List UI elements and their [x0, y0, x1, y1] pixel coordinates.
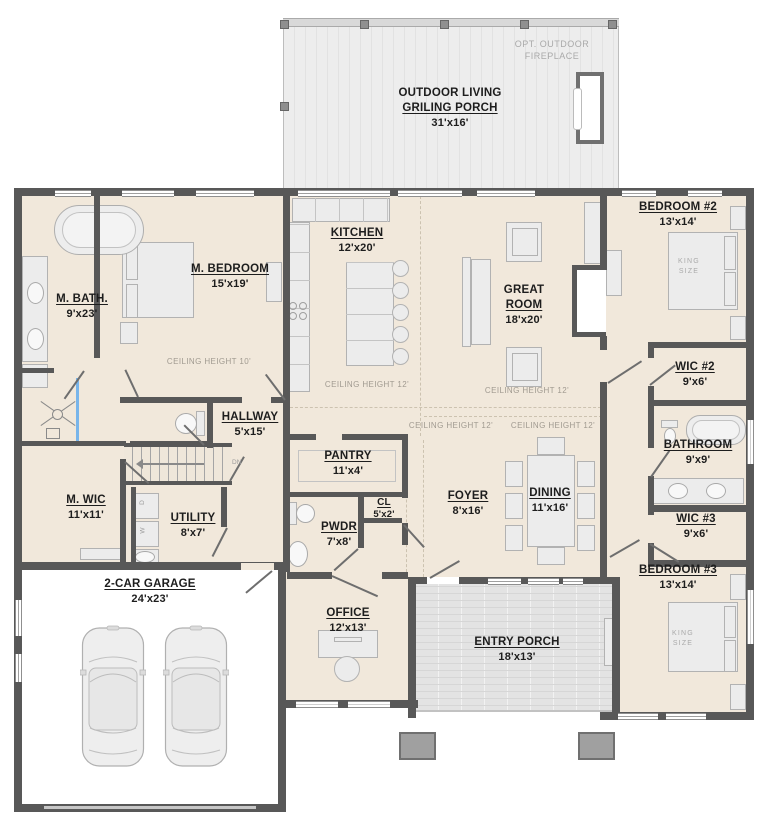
- wall: [612, 577, 620, 720]
- room-title: WIC #2: [647, 360, 743, 375]
- furniture: [512, 228, 538, 256]
- room-title: PWDR: [299, 520, 379, 535]
- wall: [14, 188, 22, 570]
- sink-or-toilet: [668, 483, 688, 499]
- furniture: [505, 461, 523, 487]
- sink-or-toilet: [27, 328, 44, 350]
- window: [622, 190, 656, 197]
- room-title: M. WIC: [40, 493, 132, 508]
- room-label-bedroom-2: BEDROOM #2 13'x14': [617, 200, 739, 229]
- window: [688, 190, 722, 197]
- kitchen-counter-texture: [292, 198, 390, 222]
- stool-or-chair: [392, 282, 409, 299]
- window: [196, 190, 254, 197]
- stool-or-chair: [392, 304, 409, 321]
- room-label-powder: PWDR 7'x8': [299, 520, 379, 549]
- shower-head-icon: [46, 428, 60, 439]
- wall: [648, 505, 746, 512]
- porch-post: [280, 102, 289, 111]
- note-line: FIREPLACE: [496, 50, 608, 62]
- stool-or-chair: [392, 260, 409, 277]
- island-texture: [346, 262, 394, 366]
- room-label-great-room: GREAT ROOM 18'x20': [478, 283, 570, 327]
- room-title: KITCHEN: [305, 226, 409, 241]
- room-dims: 7'x8': [299, 535, 379, 549]
- room-label-garage: 2-CAR GARAGE 24'x23': [68, 577, 232, 606]
- room-label-dining: DINING 11'x16': [508, 486, 592, 515]
- wall: [278, 562, 286, 812]
- dashed-ceiling-line: [423, 440, 424, 577]
- dashed-ceiling-line: [290, 407, 606, 408]
- room-dims: 13'x14': [617, 215, 739, 229]
- window: [747, 590, 754, 644]
- shower-glass-panel: [76, 378, 79, 442]
- wall: [408, 577, 416, 718]
- room-label-outdoor-living: OUTDOOR LIVING GRILING PORCH 31'x16': [348, 86, 552, 130]
- furniture: [196, 411, 205, 436]
- wall: [648, 400, 746, 406]
- furniture: [652, 478, 744, 504]
- room-label-foyer: FOYER 8'x16': [426, 489, 510, 518]
- furniture: [606, 250, 622, 296]
- room-dims: 11'x11': [40, 508, 132, 522]
- furniture: [661, 420, 678, 428]
- room-label-entry-porch: ENTRY PORCH 18'x13': [453, 635, 581, 664]
- opt-fireplace-note: OPT. OUTDOOR FIREPLACE: [496, 38, 608, 62]
- window: [618, 713, 658, 720]
- furniture: [120, 322, 138, 344]
- wall: [124, 481, 232, 485]
- ceiling-height-note: CEILING HEIGHT 12': [312, 380, 422, 389]
- porch-step-edge: [416, 710, 612, 712]
- window: [298, 190, 390, 197]
- porch-post: [520, 20, 529, 29]
- stool-or-chair: [392, 326, 409, 343]
- furniture: [730, 316, 746, 340]
- king-size-note: KING SIZE: [660, 629, 706, 649]
- room-dims: 11'x4': [302, 464, 394, 478]
- wall: [648, 342, 746, 348]
- outdoor-fireplace-hearth: [573, 88, 582, 130]
- room-label-bedroom-3: BEDROOM #3 13'x14': [616, 563, 740, 592]
- stove-burner-icon: [299, 302, 307, 310]
- room-title: ROOM: [478, 298, 570, 313]
- room-title: BEDROOM #2: [617, 200, 739, 215]
- ceiling-height-note: CEILING HEIGHT 12': [472, 386, 582, 395]
- window: [15, 600, 22, 636]
- stove-burner-icon: [289, 302, 297, 310]
- furniture: [577, 461, 595, 487]
- wall: [342, 434, 408, 440]
- deck-edge-beam: [283, 18, 619, 27]
- note-line: SIZE: [666, 267, 712, 277]
- dashed-ceiling-line: [424, 416, 602, 417]
- ceiling-height-note: CEILING HEIGHT 10': [154, 357, 264, 366]
- room-dims: 9'x6': [647, 375, 743, 389]
- dashed-ceiling-line: [420, 196, 421, 436]
- room-dims: 18'x13': [453, 650, 581, 664]
- room-label-m-bedroom: M. BEDROOM 15'x19': [168, 262, 292, 291]
- note-line: KING: [666, 257, 712, 267]
- window: [477, 190, 535, 197]
- furniture: [724, 236, 736, 270]
- wall: [290, 434, 316, 440]
- room-title: OUTDOOR LIVING: [348, 86, 552, 101]
- room-title: M. BEDROOM: [168, 262, 292, 277]
- room-dims: 12'x20': [305, 241, 409, 255]
- room-dims: 31'x16': [348, 116, 552, 130]
- shower-drain-icon: [52, 409, 63, 420]
- room-title: DINING: [508, 486, 592, 501]
- room-title: M. BATH.: [30, 292, 134, 307]
- room-title: ENTRY PORCH: [453, 635, 581, 650]
- room-dims: 9'x9': [645, 453, 751, 467]
- room-dims: 9'x6': [648, 527, 744, 541]
- room-dims: 8'x7': [151, 526, 235, 540]
- stairs-arrow-icon: [136, 459, 143, 469]
- window: [528, 578, 559, 585]
- room-dims: 18'x20': [478, 313, 570, 327]
- room-label-wic-3: WIC #3 9'x6': [648, 512, 744, 541]
- room-label-m-bath: M. BATH. 9'x23': [30, 292, 134, 321]
- furniture: [584, 202, 601, 264]
- wall: [22, 368, 54, 373]
- room-dims: 12'x13': [305, 621, 391, 635]
- stove-burner-icon: [299, 312, 307, 320]
- room-title: GRILING PORCH: [348, 101, 552, 116]
- room-label-hallway: HALLWAY 5'x15': [211, 410, 289, 439]
- porch-column: [578, 732, 615, 760]
- wall: [283, 188, 290, 572]
- note-line: OPT. OUTDOOR: [496, 38, 608, 50]
- wall: [600, 382, 607, 583]
- room-label-bathroom: BATHROOM 9'x9': [645, 438, 751, 467]
- room-title: PANTRY: [302, 449, 394, 464]
- garage-entry-opening: [241, 563, 274, 570]
- wall: [94, 196, 100, 358]
- room-dims: 5'x15': [211, 425, 289, 439]
- furniture: [537, 437, 565, 455]
- room-title: HALLWAY: [211, 410, 289, 425]
- sink-or-toilet: [175, 413, 197, 434]
- wall: [287, 572, 332, 579]
- window: [563, 578, 583, 585]
- stove-burner-icon: [289, 312, 297, 320]
- room-title: WIC #3: [648, 512, 744, 527]
- note-line: KING: [660, 629, 706, 639]
- room-dims: 8'x16': [426, 504, 510, 518]
- window: [666, 713, 706, 720]
- room-dims: 11'x16': [508, 501, 592, 515]
- window: [55, 190, 91, 197]
- room-title: FOYER: [426, 489, 510, 504]
- wall: [600, 336, 607, 350]
- car: [163, 622, 229, 770]
- furniture: [724, 640, 736, 672]
- furniture: [505, 525, 523, 551]
- dryer-label: D: [139, 500, 146, 505]
- stairs-down-note: DN: [232, 459, 241, 466]
- window: [398, 190, 462, 197]
- wall: [648, 342, 654, 358]
- wall: [124, 443, 232, 447]
- room-label-pantry: PANTRY 11'x4': [302, 449, 394, 478]
- note-line: SIZE: [660, 639, 706, 649]
- door-swing: [245, 570, 272, 593]
- porch-column: [399, 732, 436, 760]
- room-title: 2-CAR GARAGE: [68, 577, 232, 592]
- room-title: OFFICE: [305, 606, 391, 621]
- bathtub-basin: [692, 420, 740, 440]
- window: [348, 701, 390, 708]
- porch-post: [360, 20, 369, 29]
- porch-post: [608, 20, 617, 29]
- sink-or-toilet: [706, 483, 726, 499]
- wall: [382, 572, 408, 579]
- wall: [22, 441, 126, 446]
- furniture: [80, 548, 122, 560]
- furniture: [334, 637, 362, 642]
- room-dims: 13'x14': [616, 578, 740, 592]
- wall: [648, 476, 654, 515]
- stairs-direction-line: [142, 463, 204, 465]
- ceiling-height-note: CEILING HEIGHT 12': [498, 421, 608, 430]
- stool-or-chair: [334, 656, 360, 682]
- room-label-wic-2: WIC #2 9'x6': [647, 360, 743, 389]
- furniture: [537, 547, 565, 565]
- window: [488, 578, 521, 585]
- furniture: [577, 525, 595, 551]
- room-label-m-wic: M. WIC 11'x11': [40, 493, 132, 522]
- room-label-office: OFFICE 12'x13': [305, 606, 391, 635]
- furniture: [724, 606, 736, 638]
- room-label-closet: CL 5'x2': [361, 496, 407, 521]
- garage-door-line: [44, 806, 256, 809]
- stool-or-chair: [392, 348, 409, 365]
- furniture: [512, 353, 538, 381]
- room-dims: 15'x19': [168, 277, 292, 291]
- room-title: GREAT: [478, 283, 570, 298]
- wall: [120, 397, 242, 403]
- room-dims: 24'x23': [68, 592, 232, 606]
- window: [15, 654, 22, 682]
- furniture: [724, 272, 736, 306]
- porch-post: [280, 20, 289, 29]
- window: [296, 701, 338, 708]
- room-label-utility: UTILITY 8'x7': [151, 511, 235, 540]
- porch-post: [440, 20, 449, 29]
- room-title: BEDROOM #3: [616, 563, 740, 578]
- room-dims: 9'x23': [30, 307, 134, 321]
- room-title: UTILITY: [151, 511, 235, 526]
- room-label-kitchen: KITCHEN 12'x20': [305, 226, 409, 255]
- floor-plan: OUTDOOR LIVING GRILING PORCH 31'x16' M. …: [0, 0, 768, 834]
- furniture: [730, 684, 746, 710]
- furniture: [462, 257, 471, 347]
- car: [80, 622, 146, 770]
- window: [122, 190, 174, 197]
- room-title: CL: [361, 496, 407, 509]
- washer-label: W: [140, 527, 147, 533]
- fireplace: [572, 265, 606, 337]
- room-title: BATHROOM: [645, 438, 751, 453]
- king-size-note: KING SIZE: [666, 257, 712, 277]
- ceiling-height-note: CEILING HEIGHT 12': [396, 421, 506, 430]
- wall: [402, 434, 408, 498]
- wall: [600, 196, 607, 270]
